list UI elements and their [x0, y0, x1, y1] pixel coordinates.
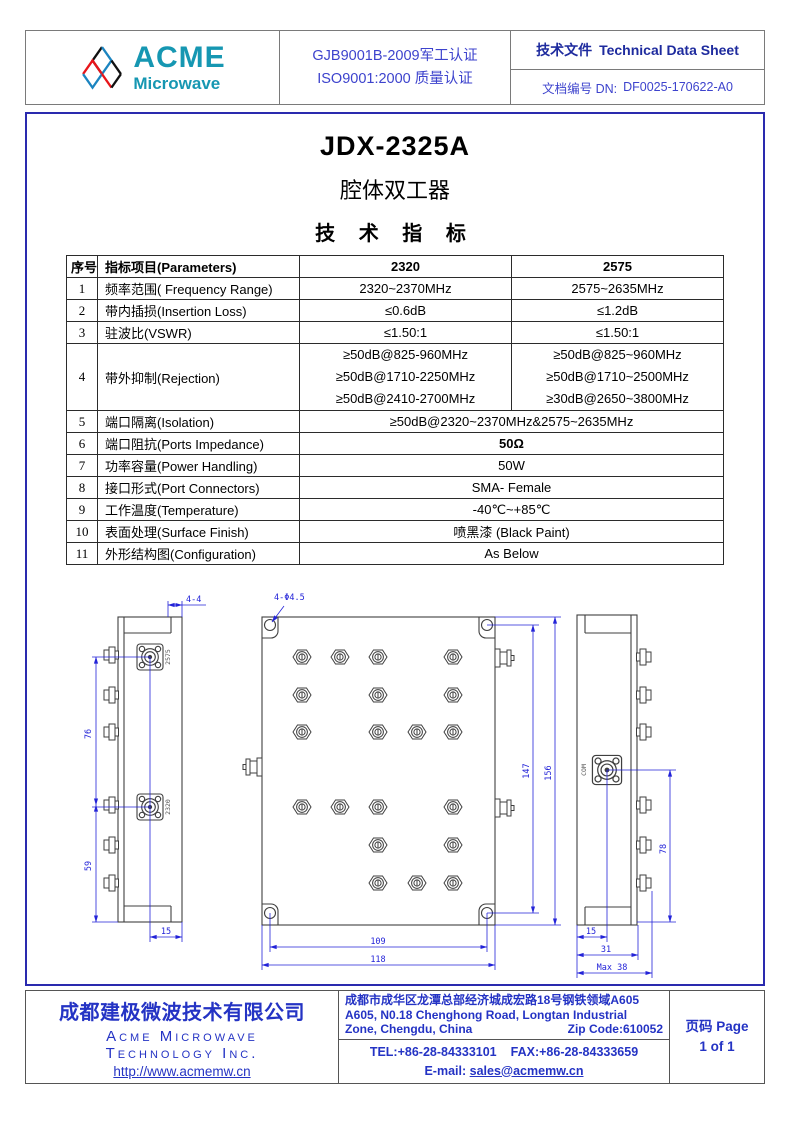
table-row: 6 端口阻抗(Ports Impedance) 50Ω [67, 433, 724, 455]
email-link[interactable]: sales@acmemw.cn [470, 1064, 584, 1078]
table-row: 1 频率范围( Frequency Range) 2320~2370MHz 25… [67, 278, 724, 300]
dim-118: 118 [370, 955, 385, 965]
hole-callout: 4-Φ4.5 [274, 593, 305, 603]
doc-type-cn: 技术文件 [536, 40, 592, 60]
footer-company: 成都建极微波技术有限公司 Acme Microwave Technology I… [26, 991, 339, 1083]
mechanical-drawing: 2575 2320 76 59 4-4 15 [60, 575, 760, 988]
table-header-row: 序号 指标项目(Parameters) 2320 2575 [67, 256, 724, 278]
dim-15-right: 15 [586, 927, 596, 937]
table-row: 7 功率容量(Power Handling) 50W [67, 455, 724, 477]
address-cn: 成都市成华区龙潭总部经济城成宏路18号钢铁领域A605 [345, 993, 663, 1008]
dim-15-left: 15 [161, 927, 171, 937]
cert-line-2: ISO9001:2000 质量认证 [317, 68, 473, 90]
address-en-1: A605, N0.18 Chenghong Road, Longtan Indu… [345, 1008, 663, 1023]
cert-line-1: GJB9001B-2009军工认证 [312, 45, 477, 67]
page-value: 1 of 1 [699, 1037, 734, 1057]
port-com-label: COM [580, 764, 588, 776]
email-label: E-mail: [424, 1064, 466, 1078]
acme-logo-icon [79, 39, 125, 97]
datasheet-page: ACME Microwave GJB9001B-2009军工认证 ISO9001… [0, 0, 790, 1121]
zip-code: Zip Code:610052 [568, 1022, 663, 1037]
dim-max-38: Max 38 [597, 963, 628, 973]
col-header-2575: 2575 [512, 256, 724, 278]
brand-name: ACME [133, 43, 225, 73]
port-2320-label: 2320 [164, 799, 172, 815]
fax: FAX:+86-28-84333659 [511, 1043, 639, 1062]
col-header-param: 指标项目(Parameters) [98, 256, 300, 278]
table-row-rejection: 4 带外抑制(Rejection) ≥50dB@825-960MHz ≥50dB… [67, 344, 724, 411]
footer-contact: 成都市成华区龙潭总部经济城成宏路18号钢铁领域A605 A605, N0.18 … [339, 991, 670, 1083]
tel-block: TEL:+86-28-84333101 FAX:+86-28-84333659 … [339, 1040, 669, 1083]
doc-no: DF0025-170622-A0 [623, 80, 733, 94]
certifications: GJB9001B-2009军工认证 ISO9001:2000 质量认证 [279, 31, 511, 104]
model-title: JDX-2325A [27, 131, 763, 162]
dim-78: 78 [659, 844, 669, 854]
footer: 成都建极微波技术有限公司 Acme Microwave Technology I… [25, 990, 765, 1084]
port-2575-label: 2575 [164, 649, 172, 665]
company-name-en-2: Technology Inc. [106, 1045, 259, 1062]
col-header-no: 序号 [67, 256, 98, 278]
spec-table: 序号 指标项目(Parameters) 2320 2575 1 频率范围( Fr… [66, 255, 724, 565]
dim-59: 59 [84, 861, 94, 871]
tel: TEL:+86-28-84333101 [370, 1043, 497, 1062]
dim-109: 109 [370, 937, 385, 947]
table-row: 9 工作温度(Temperature) -40℃~+85℃ [67, 499, 724, 521]
logo: ACME Microwave [26, 31, 279, 104]
company-name-en-1: Acme Microwave [106, 1028, 258, 1045]
dim-156: 156 [544, 765, 554, 780]
header: ACME Microwave GJB9001B-2009军工认证 ISO9001… [25, 30, 765, 105]
address-en-2: Zone, Chengdu, China [345, 1022, 472, 1037]
table-row: 3 驻波比(VSWR) ≤1.50:1 ≤1.50:1 [67, 322, 724, 344]
main-content: JDX-2325A 腔体双工器 技 术 指 标 序号 指标项目(Paramete… [25, 112, 765, 986]
table-row: 8 接口形式(Port Connectors) SMA- Female [67, 477, 724, 499]
product-name-cn: 腔体双工器 [27, 173, 763, 205]
dim-147: 147 [522, 763, 532, 778]
table-row: 10 表面处理(Surface Finish) 喷黑漆 (Black Paint… [67, 521, 724, 543]
address-block: 成都市成华区龙潭总部经济城成宏路18号钢铁领域A605 A605, N0.18 … [339, 991, 669, 1040]
page-number: 页码 Page 1 of 1 [670, 991, 764, 1083]
brand-sub: Microwave [133, 75, 225, 92]
doc-type-en: Technical Data Sheet [599, 42, 739, 58]
doc-info: 技术文件 Technical Data Sheet 文档编号 DN: DF002… [511, 31, 764, 104]
dim-76: 76 [84, 729, 94, 739]
doc-no-label: 文档编号 DN: [542, 78, 617, 97]
dim-4-4: 4-4 [186, 595, 201, 605]
dim-31: 31 [601, 945, 611, 955]
company-name-cn: 成都建极微波技术有限公司 [59, 996, 305, 1025]
col-header-2320: 2320 [300, 256, 512, 278]
page-label: 页码 Page [685, 1017, 748, 1037]
table-row: 11 外形结构图(Configuration) As Below [67, 543, 724, 565]
company-url-link[interactable]: http://www.acmemw.cn [113, 1064, 250, 1079]
spec-section-title: 技 术 指 标 [27, 217, 763, 246]
table-row: 5 端口隔离(Isolation) ≥50dB@2320~2370MHz&257… [67, 411, 724, 433]
table-row: 2 带内插损(Insertion Loss) ≤0.6dB ≤1.2dB [67, 300, 724, 322]
